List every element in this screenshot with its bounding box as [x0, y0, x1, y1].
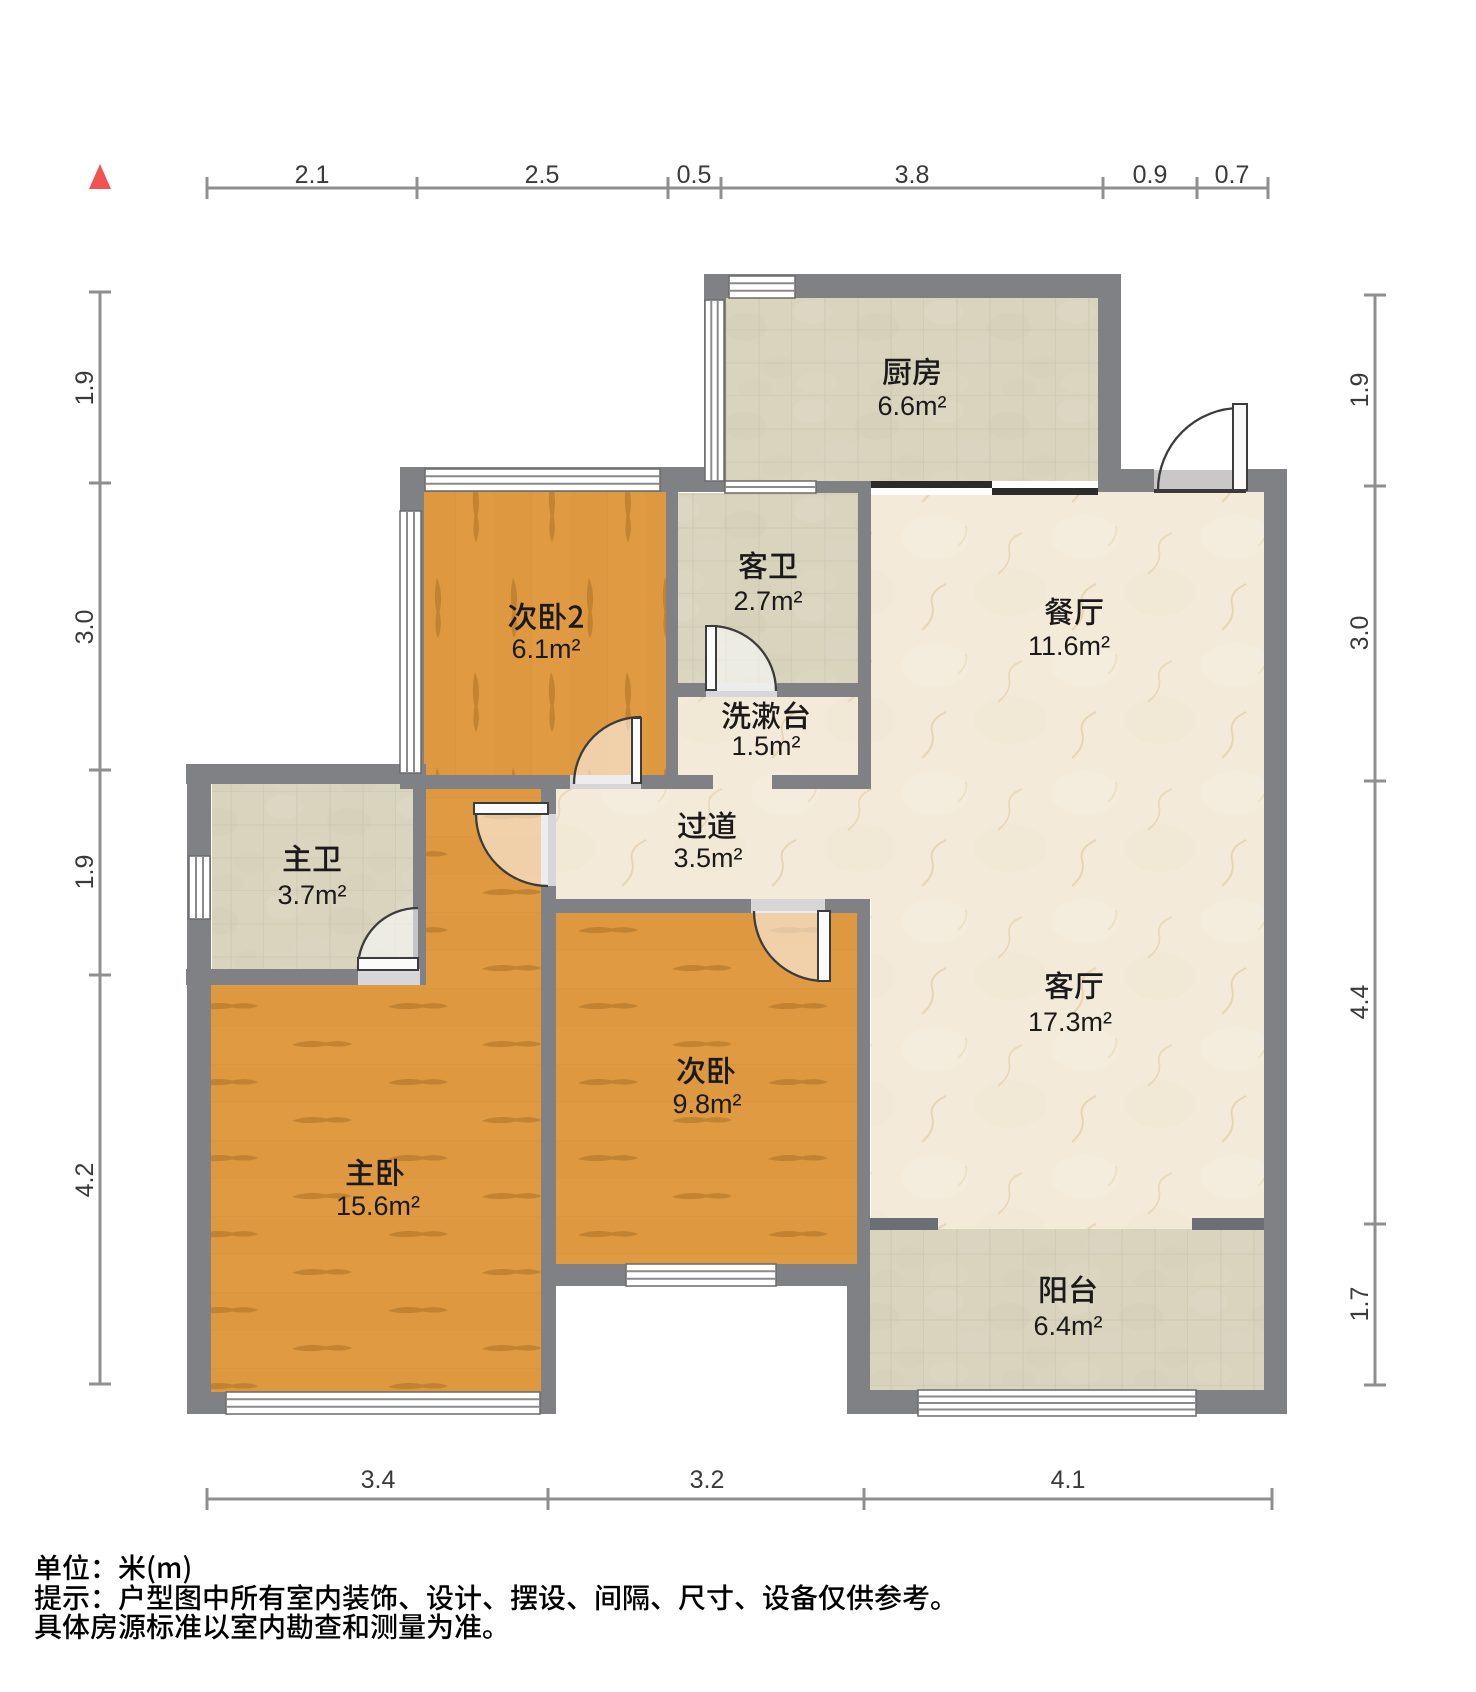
- svg-text:2.7m²: 2.7m²: [733, 586, 802, 616]
- svg-text:0.7: 0.7: [1215, 161, 1250, 189]
- svg-text:1.9: 1.9: [71, 371, 99, 406]
- svg-text:2.5: 2.5: [525, 161, 560, 189]
- svg-text:6.1m²: 6.1m²: [511, 634, 580, 664]
- svg-text:0.9: 0.9: [1133, 161, 1168, 189]
- svg-text:4.1: 4.1: [1051, 1466, 1086, 1494]
- svg-text:1.7: 1.7: [1346, 1287, 1374, 1322]
- svg-text:0.5: 0.5: [677, 161, 712, 189]
- svg-text:2.1: 2.1: [295, 161, 330, 189]
- svg-text:11.6m²: 11.6m²: [1028, 631, 1110, 661]
- svg-text:15.6m²: 15.6m²: [336, 1191, 420, 1221]
- svg-text:1.9: 1.9: [71, 855, 99, 890]
- svg-text:4.4: 4.4: [1346, 985, 1374, 1020]
- svg-text:3.4: 3.4: [361, 1466, 396, 1494]
- svg-text:1.5m²: 1.5m²: [731, 731, 800, 761]
- svg-text:4.2: 4.2: [71, 1163, 99, 1198]
- svg-text:9.8m²: 9.8m²: [672, 1089, 741, 1119]
- svg-text:3.0: 3.0: [71, 610, 99, 645]
- svg-text:1.9: 1.9: [1346, 373, 1374, 408]
- svg-text:3.2: 3.2: [690, 1466, 725, 1494]
- svg-text:3.0: 3.0: [1346, 616, 1374, 651]
- svg-text:3.8: 3.8: [895, 161, 930, 189]
- svg-text:6.6m²: 6.6m²: [877, 391, 946, 421]
- svg-text:6.4m²: 6.4m²: [1033, 1311, 1102, 1341]
- svg-text:17.3m²: 17.3m²: [1028, 1007, 1112, 1037]
- svg-text:3.5m²: 3.5m²: [673, 843, 742, 873]
- svg-text:3.7m²: 3.7m²: [277, 880, 346, 910]
